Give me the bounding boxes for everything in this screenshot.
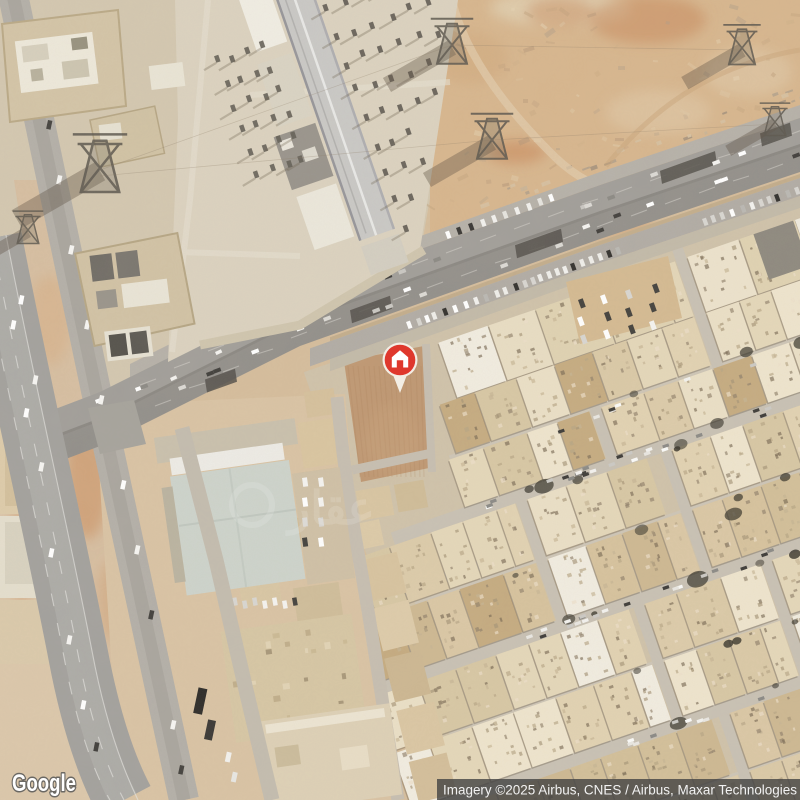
svg-text:عقار: عقار: [285, 482, 375, 536]
svg-text:Google: Google: [12, 770, 76, 797]
svg-text:Imagery ©2025 Airbus, CNES / A: Imagery ©2025 Airbus, CNES / Airbus, Max…: [443, 783, 797, 798]
